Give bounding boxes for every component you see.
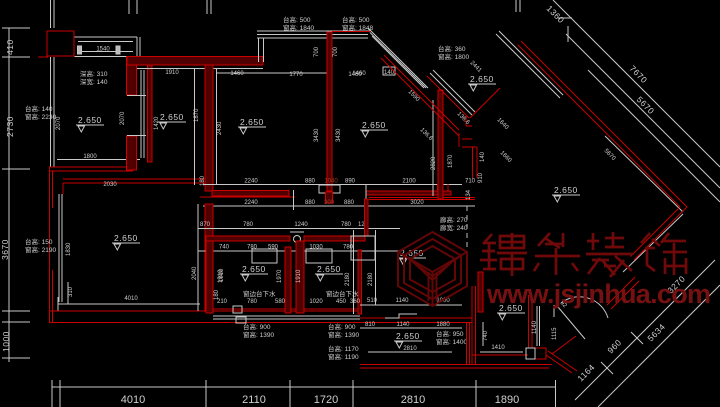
svg-text:1880: 1880	[436, 322, 450, 328]
svg-text:2180: 2180	[345, 272, 351, 286]
svg-text:台高: 900: 台高: 900	[243, 322, 271, 331]
svg-text:1890: 1890	[495, 394, 519, 406]
svg-text:1460: 1460	[352, 71, 366, 77]
svg-text:780: 780	[341, 222, 352, 228]
svg-text:2.650: 2.650	[240, 117, 264, 127]
svg-text:3430: 3430	[314, 128, 320, 142]
svg-text:880: 880	[344, 200, 355, 206]
svg-text:134: 134	[466, 189, 472, 200]
svg-text:窗边台下水: 窗边台下水	[326, 289, 359, 298]
svg-text:深宽: 140: 深宽: 140	[80, 77, 108, 86]
svg-text:1870: 1870	[448, 154, 454, 168]
svg-text:1000: 1000	[1, 331, 11, 352]
svg-text:1410: 1410	[491, 345, 505, 351]
svg-text:700: 700	[314, 46, 320, 57]
svg-text:3670: 3670	[0, 239, 10, 260]
svg-text:台高: 150: 台高: 150	[25, 237, 53, 246]
svg-text:廊高: 270: 廊高: 270	[440, 215, 468, 224]
svg-text:2100: 2100	[402, 179, 416, 185]
svg-text:窗高: 1190: 窗高: 1190	[328, 352, 359, 361]
svg-text:710: 710	[465, 179, 476, 185]
svg-text:740: 740	[219, 245, 230, 251]
svg-text:360: 360	[350, 299, 361, 305]
svg-text:2.650: 2.650	[317, 264, 341, 274]
svg-text:1115: 1115	[552, 327, 558, 340]
svg-text:780: 780	[247, 299, 258, 305]
svg-text:窗高: 1400: 窗高: 1400	[436, 337, 467, 346]
svg-text:2810: 2810	[401, 394, 425, 406]
svg-text:2.650: 2.650	[160, 112, 184, 122]
svg-text:1030: 1030	[309, 245, 323, 251]
svg-text:4010: 4010	[121, 394, 145, 406]
svg-text:www.jsjinhua.com: www.jsjinhua.com	[486, 279, 711, 309]
svg-text:2.650: 2.650	[242, 264, 266, 274]
svg-text:2040: 2040	[192, 266, 198, 280]
svg-text:台高: 360: 台高: 360	[438, 44, 466, 53]
svg-text:410: 410	[5, 39, 15, 55]
svg-text:780: 780	[343, 245, 354, 251]
svg-text:2.650: 2.650	[114, 233, 138, 243]
svg-text:1720: 1720	[314, 394, 338, 406]
svg-text:2240: 2240	[244, 179, 258, 185]
svg-text:870: 870	[200, 222, 211, 228]
svg-text:1910: 1910	[218, 269, 224, 283]
svg-text:880: 880	[305, 200, 316, 206]
svg-text:1140: 1140	[532, 320, 538, 334]
svg-text:1910: 1910	[165, 70, 179, 76]
svg-text:1140: 1140	[396, 298, 410, 304]
svg-text:180: 180	[200, 175, 206, 186]
svg-text:2110: 2110	[242, 394, 266, 406]
svg-text:1770: 1770	[289, 72, 303, 78]
svg-text:台高: 140: 台高: 140	[25, 104, 53, 113]
svg-text:2820: 2820	[431, 156, 437, 170]
svg-text:780: 780	[243, 222, 254, 228]
svg-text:窗高: 1800: 窗高: 1800	[438, 52, 469, 61]
svg-text:140: 140	[384, 70, 395, 76]
svg-text:2.650: 2.650	[396, 331, 420, 341]
svg-text:台高: 1170: 台高: 1170	[328, 344, 359, 353]
svg-text:740: 740	[483, 330, 489, 341]
svg-text:2030: 2030	[103, 182, 117, 188]
svg-text:510: 510	[367, 298, 378, 304]
svg-text:880: 880	[305, 179, 316, 185]
svg-text:910: 910	[478, 172, 484, 183]
svg-text:窗高: 1390: 窗高: 1390	[243, 330, 274, 339]
svg-text:窗高: 1848: 窗高: 1848	[342, 23, 373, 32]
svg-text:4010: 4010	[124, 296, 138, 302]
svg-text:1870: 1870	[194, 108, 200, 122]
svg-text:180: 180	[214, 289, 220, 300]
svg-text:2730: 2730	[5, 116, 15, 137]
svg-text:3020: 3020	[410, 200, 424, 206]
svg-text:1240: 1240	[294, 222, 308, 228]
svg-text:窗高: 1840: 窗高: 1840	[283, 23, 314, 32]
svg-text:700: 700	[333, 46, 339, 57]
svg-text:1040: 1040	[324, 179, 338, 185]
svg-text:580: 580	[275, 299, 286, 305]
svg-text:2.650: 2.650	[362, 120, 386, 130]
svg-text:1970: 1970	[277, 269, 283, 283]
svg-text:窗边台下水: 窗边台下水	[243, 289, 276, 298]
svg-text:3430: 3430	[336, 128, 342, 142]
svg-text:2.650: 2.650	[78, 115, 102, 125]
svg-text:1020: 1020	[309, 299, 323, 305]
svg-text:窗高: 2190: 窗高: 2190	[25, 245, 56, 254]
svg-text:890: 890	[345, 179, 356, 185]
svg-text:300: 300	[324, 200, 335, 206]
svg-text:1540: 1540	[96, 47, 110, 53]
svg-text:1800: 1800	[83, 154, 97, 160]
svg-text:2240: 2240	[244, 200, 258, 206]
svg-text:310: 310	[68, 286, 74, 297]
svg-text:2070: 2070	[56, 116, 62, 130]
svg-text:2070: 2070	[120, 111, 126, 125]
svg-text:廊宽: 240: 廊宽: 240	[440, 223, 468, 232]
svg-text:450: 450	[336, 299, 347, 305]
svg-text:140: 140	[480, 151, 486, 162]
svg-text:1910: 1910	[296, 269, 302, 283]
svg-text:深高: 310: 深高: 310	[80, 69, 108, 78]
svg-text:2430: 2430	[217, 121, 223, 135]
svg-text:810: 810	[365, 322, 376, 328]
svg-text:1830: 1830	[66, 242, 72, 256]
svg-text:2180: 2180	[368, 272, 374, 286]
svg-text:窗高: 1390: 窗高: 1390	[328, 330, 359, 339]
svg-text:1140: 1140	[397, 322, 411, 328]
svg-text:台高: 500: 台高: 500	[342, 15, 370, 24]
svg-text:台高: 950: 台高: 950	[436, 329, 464, 338]
svg-text:台高: 900: 台高: 900	[328, 322, 356, 331]
svg-text:2.650: 2.650	[554, 185, 578, 195]
svg-text:台高: 500: 台高: 500	[283, 15, 311, 24]
svg-text:窗高: 2230: 窗高: 2230	[25, 112, 56, 121]
svg-text:1460: 1460	[230, 71, 244, 77]
svg-text:2.650: 2.650	[470, 74, 494, 84]
svg-text:2810: 2810	[403, 346, 417, 352]
